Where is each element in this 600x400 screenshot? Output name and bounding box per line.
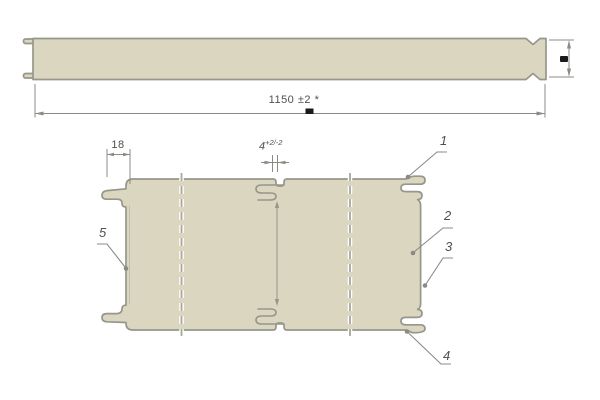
callout-2: 2	[444, 209, 451, 222]
callout-5: 5	[99, 226, 106, 239]
callout-1: 1	[440, 134, 447, 147]
gap-dimension-lines	[261, 155, 289, 172]
technical-drawing-page: 1150 ±2 * 18 4+2/-2 1 2 3 4 5	[0, 0, 600, 400]
callout-3: 3	[445, 240, 452, 253]
leader-1	[406, 152, 447, 179]
tab-width-dimension-text: 18	[111, 140, 124, 151]
side-view-body	[33, 39, 546, 80]
leader-5	[97, 244, 128, 271]
drawing-linework	[0, 0, 600, 400]
length-dimension-mark	[306, 109, 314, 115]
callout-4: 4	[443, 349, 450, 362]
gap-dimension-tolerance: +2/-2	[265, 138, 282, 147]
leader-3	[423, 258, 453, 288]
tab-width-dimension-lines	[107, 149, 130, 184]
gap-dimension-text: 4+2/-2	[259, 139, 282, 153]
thickness-dimension-lines	[549, 40, 574, 77]
thickness-dimension-mark	[560, 56, 568, 62]
plan-view	[97, 149, 453, 364]
length-dimension-text: 1150 ±2 *	[269, 95, 320, 106]
